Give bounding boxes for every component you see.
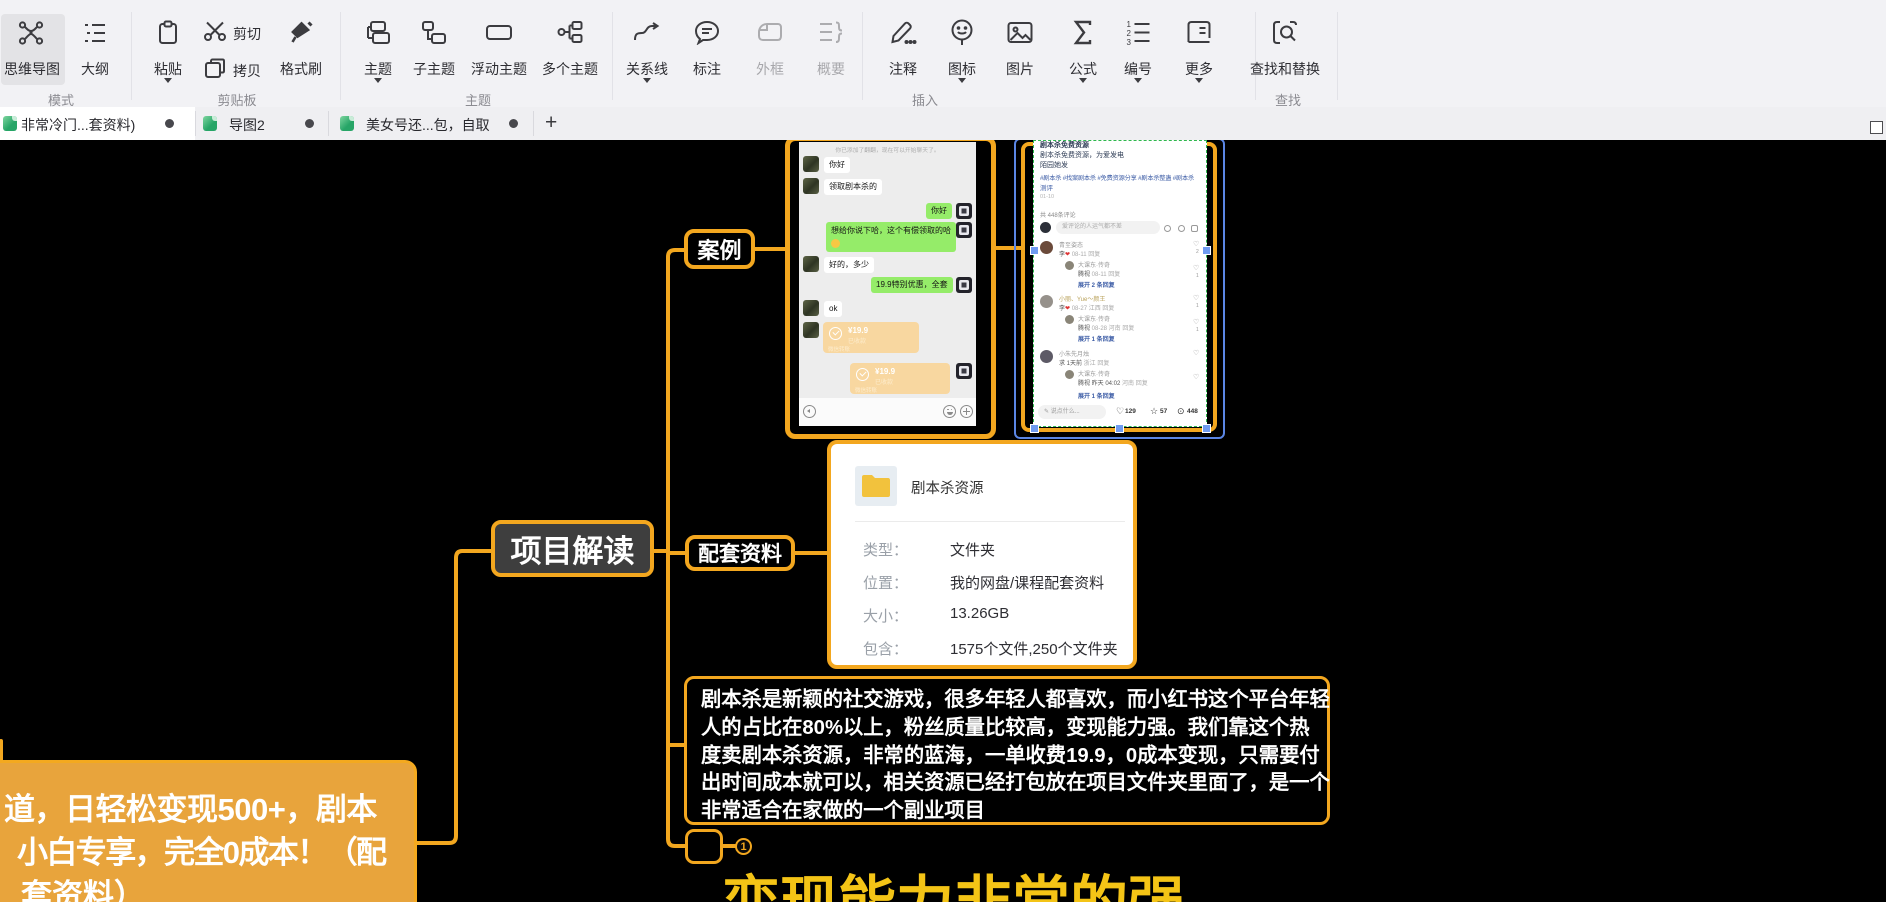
- svg-text:2: 2: [1127, 29, 1132, 38]
- svg-text:1: 1: [1127, 20, 1132, 29]
- svg-text:3: 3: [1127, 38, 1132, 45]
